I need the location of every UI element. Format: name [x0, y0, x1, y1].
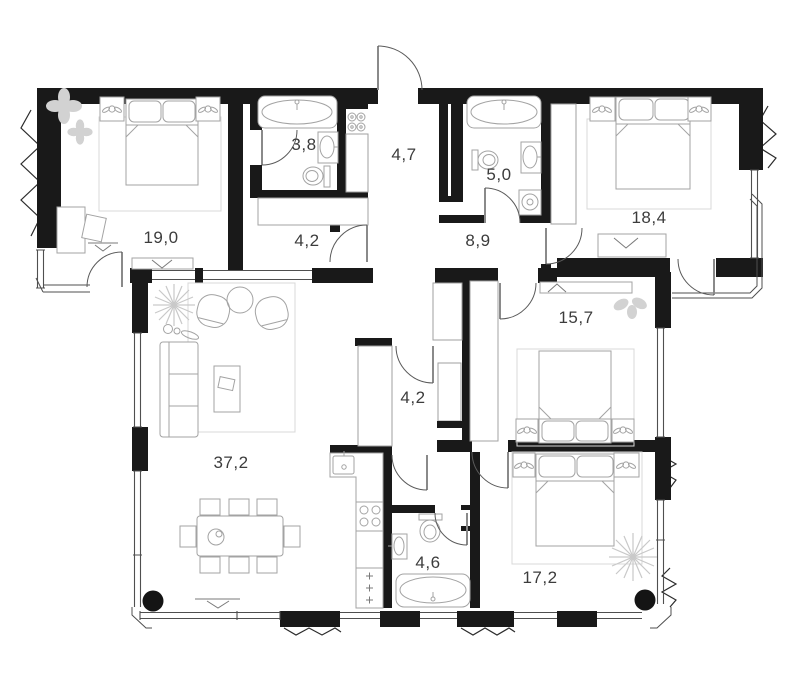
bathroom-top-right-fixtures	[467, 96, 541, 215]
room-area-label: 5,0	[486, 165, 511, 184]
armchair-icon	[252, 294, 291, 333]
bedroom-bottom-right-furniture	[512, 452, 657, 581]
bed-icon	[616, 97, 690, 189]
kitchen-counter-icon	[330, 451, 383, 608]
room-area-label: 4,7	[391, 145, 416, 164]
nightstand-icon	[196, 97, 220, 121]
sofa-icon	[160, 342, 198, 437]
bathtub-icon	[467, 96, 541, 128]
entrance-door-icon	[378, 46, 422, 90]
terrace-door-icon	[87, 252, 122, 287]
door-icon	[500, 283, 536, 319]
floor-plan-canvas: 19,0 3,8 4,2 4,7 5,0 8,9 18,4 15,7 4,2 3…	[0, 0, 800, 685]
tv-stand-icon	[540, 282, 632, 293]
room-area-label: 4,6	[415, 553, 440, 572]
room-area-label: 15,7	[558, 308, 593, 327]
room-area-label: 37,2	[213, 453, 248, 472]
bed-icon	[126, 99, 198, 185]
door-icon	[392, 455, 427, 490]
tv-stand-icon	[598, 234, 666, 257]
sink-icon	[318, 132, 338, 163]
nightstand-icon	[688, 97, 711, 121]
tv-stand-icon	[132, 258, 193, 269]
desk-icon	[57, 207, 106, 253]
nightstand-icon	[513, 453, 535, 477]
sink-icon	[521, 142, 541, 173]
plant-icon	[609, 533, 657, 581]
floor-plan-page: 19,0 3,8 4,2 4,7 5,0 8,9 18,4 15,7 4,2 3…	[0, 0, 800, 685]
nightstand-icon	[516, 419, 538, 442]
decor-icon	[164, 325, 200, 342]
room-area-label: 3,8	[291, 135, 316, 154]
room-area-label: 8,9	[465, 231, 490, 250]
plant-icon	[612, 295, 649, 319]
nightstand-icon	[100, 97, 124, 121]
coffee-table-icon	[214, 366, 240, 412]
nightstand-icon	[590, 97, 615, 121]
room-area-label: 18,4	[631, 208, 666, 227]
utility-meters-icon	[348, 113, 365, 131]
room-area-label: 17,2	[522, 568, 557, 587]
bedroom-top-right-furniture	[587, 97, 711, 257]
side-table-icon	[227, 287, 253, 313]
column-icon	[143, 591, 164, 612]
bed-icon	[539, 351, 611, 443]
nightstand-icon	[614, 453, 639, 477]
nightstand-icon	[612, 419, 634, 442]
column-icon	[635, 590, 656, 611]
room-area-label: 4,2	[400, 388, 425, 407]
bathtub-icon	[258, 96, 337, 128]
bedroom-middle-right-furniture	[516, 282, 649, 446]
bed-icon	[536, 454, 614, 546]
toilet-icon	[303, 166, 330, 187]
bathtub-icon	[396, 574, 470, 607]
bedroom-top-left-furniture	[46, 88, 221, 269]
door-icon	[396, 346, 433, 383]
dining-table-icon	[180, 499, 300, 573]
room-area-label: 19,0	[143, 228, 178, 247]
room-area-label: 4,2	[294, 231, 319, 250]
washing-machine-icon	[519, 190, 541, 215]
door-icon	[485, 188, 520, 223]
balcony-door-icon	[678, 259, 714, 295]
plant-icon	[153, 284, 195, 326]
